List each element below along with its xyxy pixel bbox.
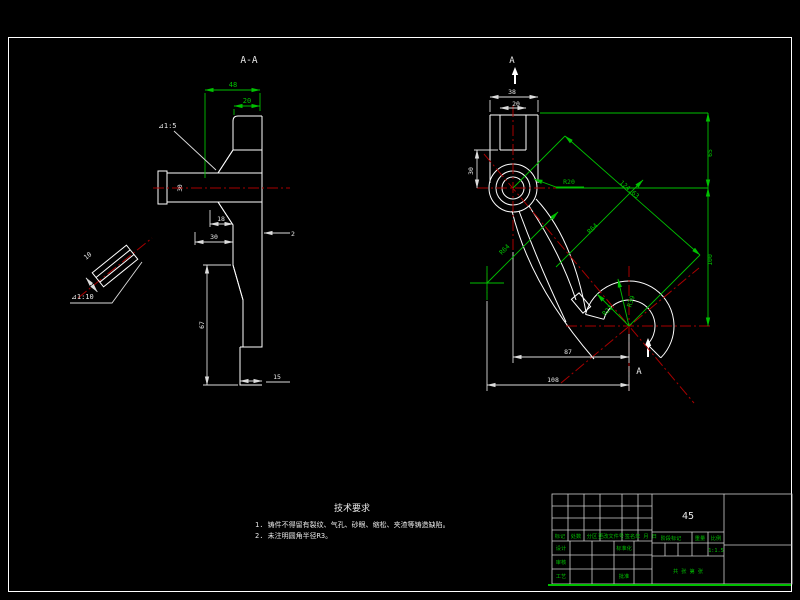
svg-text:67: 67: [198, 321, 206, 329]
svg-text:标记: 标记: [555, 532, 565, 540]
tech-requirements-title: 技术要求: [334, 502, 370, 514]
material-value: 45: [682, 511, 694, 522]
svg-text:20: 20: [512, 100, 520, 108]
svg-text:A: A: [636, 367, 642, 377]
drawing-sheet: A-A 48 20 ⊿1:5 30 1: [0, 0, 800, 600]
svg-text:100: 100: [706, 254, 714, 266]
svg-text:A: A: [509, 56, 515, 66]
sheet-background: [0, 0, 800, 600]
tech-requirement-item: 1. 铸件不得留有裂纹、气孔、砂眼、缩松、夹渣等铸造缺陷。: [255, 520, 450, 529]
svg-text:阶段标记: 阶段标记: [661, 534, 682, 542]
svg-text:处数: 处数: [571, 532, 582, 540]
svg-text:⊿1:5: ⊿1:5: [158, 122, 177, 130]
svg-text:工艺: 工艺: [556, 573, 566, 580]
svg-text:签名: 签名: [625, 532, 635, 540]
svg-text:48: 48: [229, 81, 237, 89]
section-view-title: A-A: [240, 55, 257, 66]
scale-value: 1:1.5: [708, 548, 724, 554]
svg-text:审核: 审核: [556, 558, 566, 566]
tech-requirement-item: 2. 未注明圆角半径R3。: [255, 531, 332, 540]
dim-bore-30: 30: [177, 184, 184, 192]
revision-header-row: 标记 处数 分区 更改文件号 签名 年 月 日: [555, 532, 657, 540]
svg-text:65: 65: [706, 149, 714, 157]
svg-text:年 月 日: 年 月 日: [635, 532, 657, 540]
svg-text:30: 30: [210, 233, 218, 241]
svg-text:30: 30: [467, 167, 475, 175]
svg-text:R20: R20: [563, 178, 575, 186]
sheet-info: 共 张 第 张: [673, 567, 704, 575]
svg-text:15: 15: [273, 373, 281, 381]
svg-text:38: 38: [508, 88, 516, 96]
cad-canvas: A-A 48 20 ⊿1:5 30 1: [0, 0, 800, 600]
svg-text:设计: 设计: [556, 544, 566, 552]
svg-text:比例: 比例: [711, 534, 721, 542]
svg-text:108: 108: [547, 376, 559, 384]
svg-text:18: 18: [217, 215, 225, 223]
svg-text:重量: 重量: [695, 534, 705, 542]
svg-text:分区: 分区: [587, 532, 597, 540]
svg-text:更改文件号: 更改文件号: [598, 532, 624, 540]
svg-text:标准化: 标准化: [616, 544, 632, 552]
svg-text:87: 87: [564, 348, 572, 356]
svg-text:⊿1:10: ⊿1:10: [71, 293, 94, 301]
svg-text:2: 2: [291, 230, 295, 238]
svg-text:批准: 批准: [619, 572, 629, 580]
svg-text:20: 20: [243, 97, 251, 105]
